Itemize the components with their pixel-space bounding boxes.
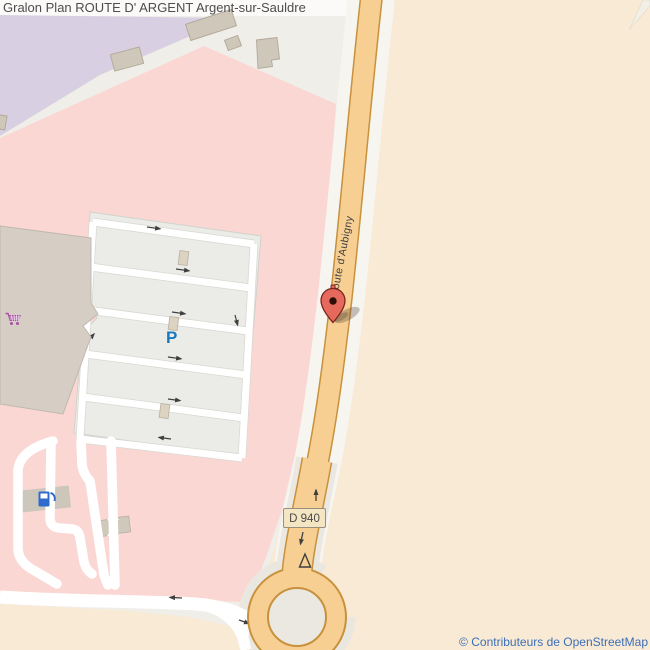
map-canvas: D 940 P Route d'Aubigny © Contributeurs … [0, 0, 650, 650]
road-ref-badge: D 940 [284, 509, 326, 528]
page-title: Gralon Plan ROUTE D' ARGENT Argent-sur-S… [3, 0, 306, 15]
svg-text:D 940: D 940 [289, 513, 320, 525]
parking-label: P [166, 328, 177, 347]
map-viewport[interactable]: Gralon Plan ROUTE D' ARGENT Argent-sur-S… [0, 0, 650, 650]
roundabout-island [268, 588, 326, 646]
attribution-link[interactable]: © Contributeurs de OpenStreetMap [459, 635, 648, 649]
